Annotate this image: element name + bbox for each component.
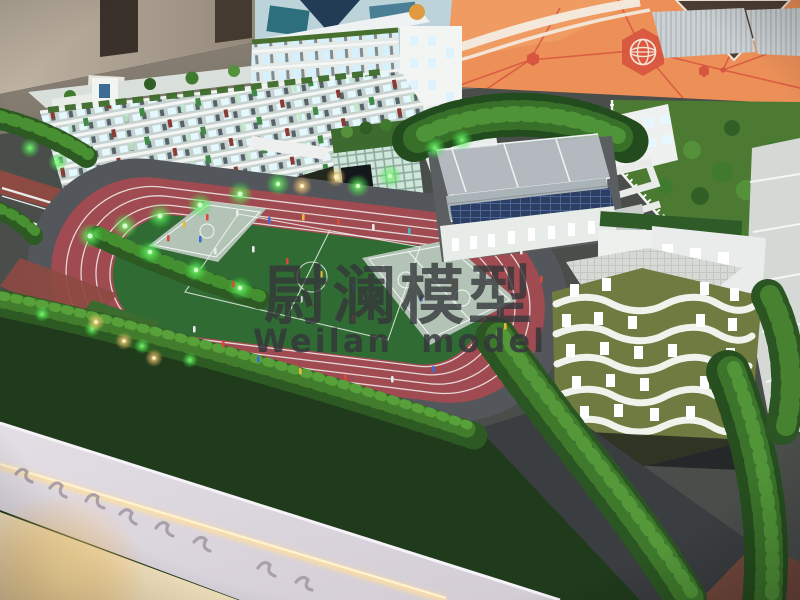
photo-vignette bbox=[0, 0, 800, 600]
model-scene: 尉澜模型 Weilan model bbox=[0, 0, 800, 600]
scale-model-photo: 尉澜模型 Weilan model bbox=[0, 0, 800, 600]
